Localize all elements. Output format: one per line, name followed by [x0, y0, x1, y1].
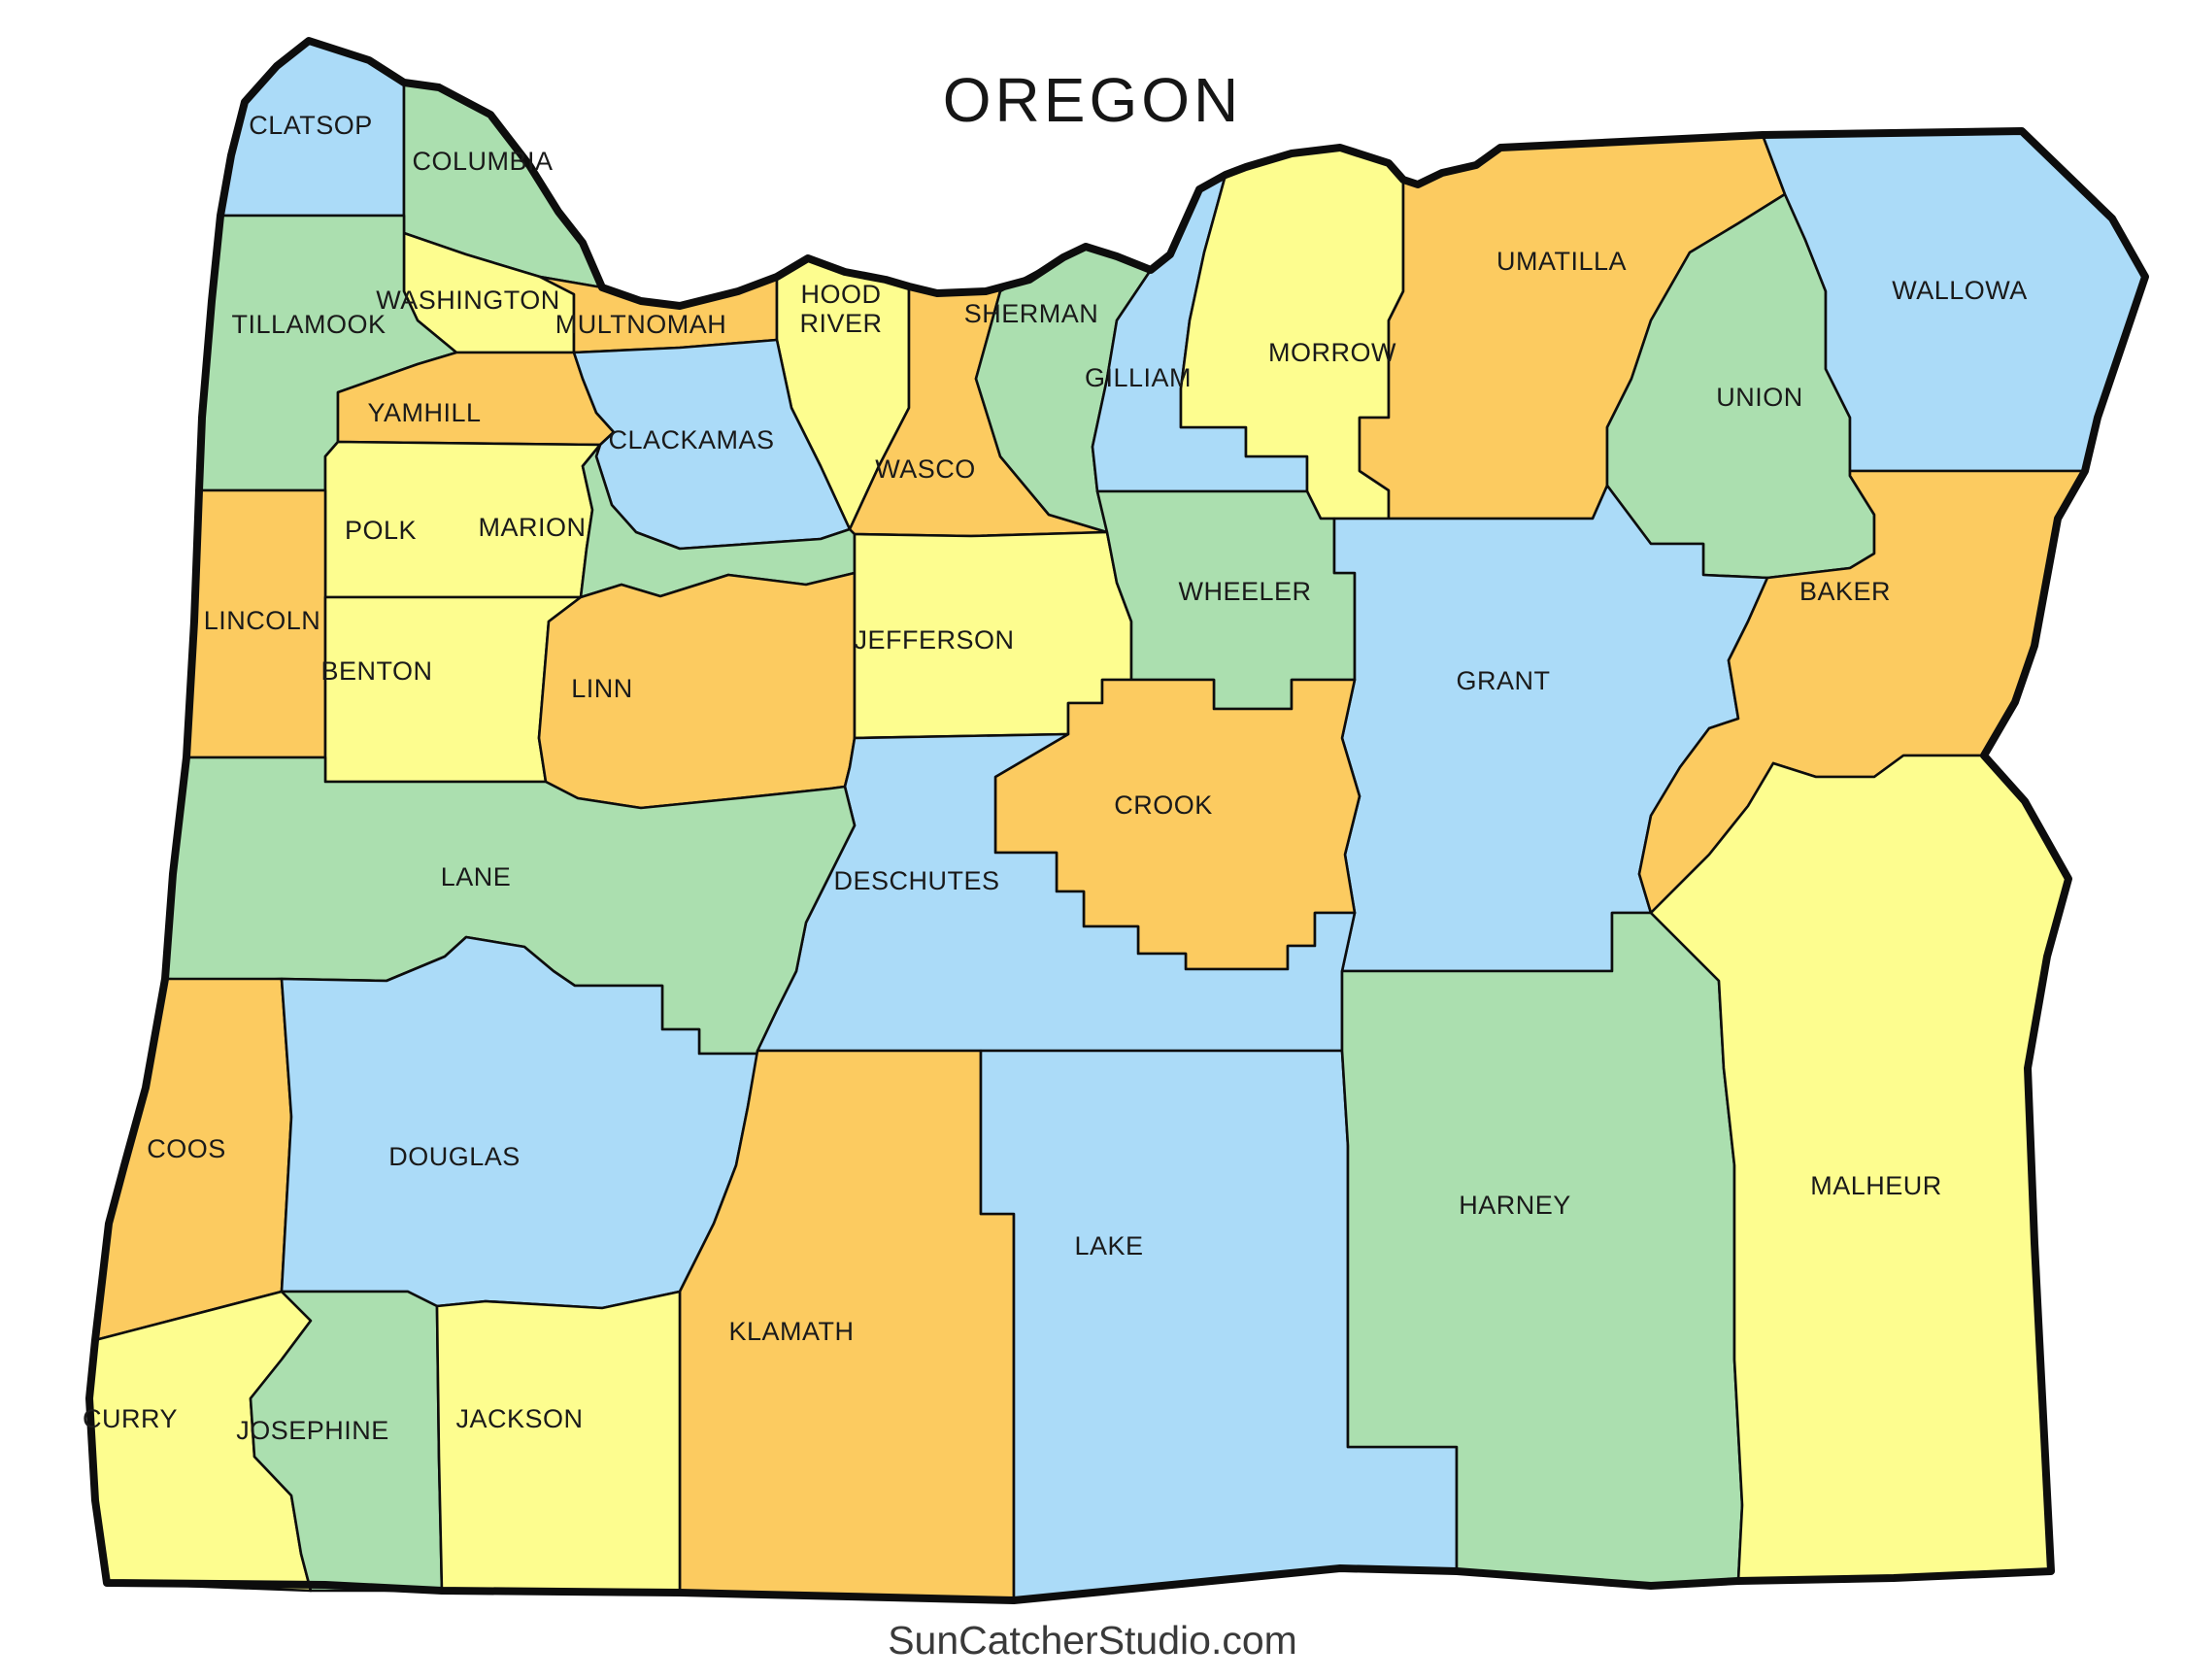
- county-label-polk: POLK: [345, 516, 417, 545]
- county-label-wheeler: WHEELER: [1178, 577, 1311, 606]
- county-label-malheur: MALHEUR: [1810, 1171, 1942, 1200]
- county-label-harney: HARNEY: [1459, 1191, 1571, 1220]
- county-label-tillamook: TILLAMOOK: [231, 310, 386, 339]
- county-label-gilliam: GILLIAM: [1085, 363, 1192, 392]
- county-label-baker: BAKER: [1799, 577, 1891, 606]
- oregon-county-map: OREGON CLATSOPCOLUMBIAWASHINGTONMULTNOMA…: [0, 0, 2185, 1680]
- county-label-grant: GRANT: [1457, 666, 1551, 695]
- county-label-morrow: MORROW: [1268, 338, 1396, 367]
- county-label-clatsop: CLATSOP: [249, 111, 373, 140]
- county-label-hood-river: HOODRIVER: [799, 280, 882, 338]
- county-label-yamhill: YAMHILL: [367, 398, 481, 427]
- footer-watermark: SunCatcherStudio.com: [0, 1618, 2185, 1663]
- county-label-lake: LAKE: [1074, 1231, 1143, 1260]
- county-label-benton: BENTON: [320, 656, 432, 686]
- county-label-union: UNION: [1716, 383, 1803, 412]
- county-label-washington: WASHINGTON: [376, 286, 560, 315]
- county-shape-jackson: [437, 1292, 680, 1593]
- county-label-linn: LINN: [571, 674, 633, 703]
- county-label-jackson: JACKSON: [455, 1404, 583, 1433]
- county-label-jefferson: JEFFERSON: [854, 625, 1014, 655]
- county-label-marion: MARION: [479, 513, 587, 542]
- county-label-crook: CROOK: [1114, 790, 1213, 820]
- county-label-lincoln: LINCOLN: [204, 606, 321, 635]
- county-label-multnomah: MULTNOMAH: [555, 310, 727, 339]
- map-canvas: CLATSOPCOLUMBIAWASHINGTONMULTNOMAHHOODRI…: [0, 0, 2185, 1680]
- county-label-douglas: DOUGLAS: [388, 1142, 521, 1171]
- county-label-klamath: KLAMATH: [728, 1317, 854, 1346]
- county-label-curry: CURRY: [83, 1404, 178, 1433]
- county-label-columbia: COLUMBIA: [412, 147, 553, 176]
- county-label-josephine: JOSEPHINE: [236, 1416, 389, 1445]
- county-label-wasco: WASCO: [875, 454, 976, 484]
- county-label-lane: LANE: [441, 862, 512, 891]
- county-label-umatilla: UMATILLA: [1496, 247, 1627, 276]
- county-label-sherman: SHERMAN: [964, 299, 1099, 328]
- county-label-deschutes: DESCHUTES: [833, 866, 999, 895]
- county-label-coos: COOS: [147, 1134, 226, 1163]
- county-label-clackamas: CLACKAMAS: [608, 425, 774, 454]
- county-label-wallowa: WALLOWA: [1892, 276, 2028, 305]
